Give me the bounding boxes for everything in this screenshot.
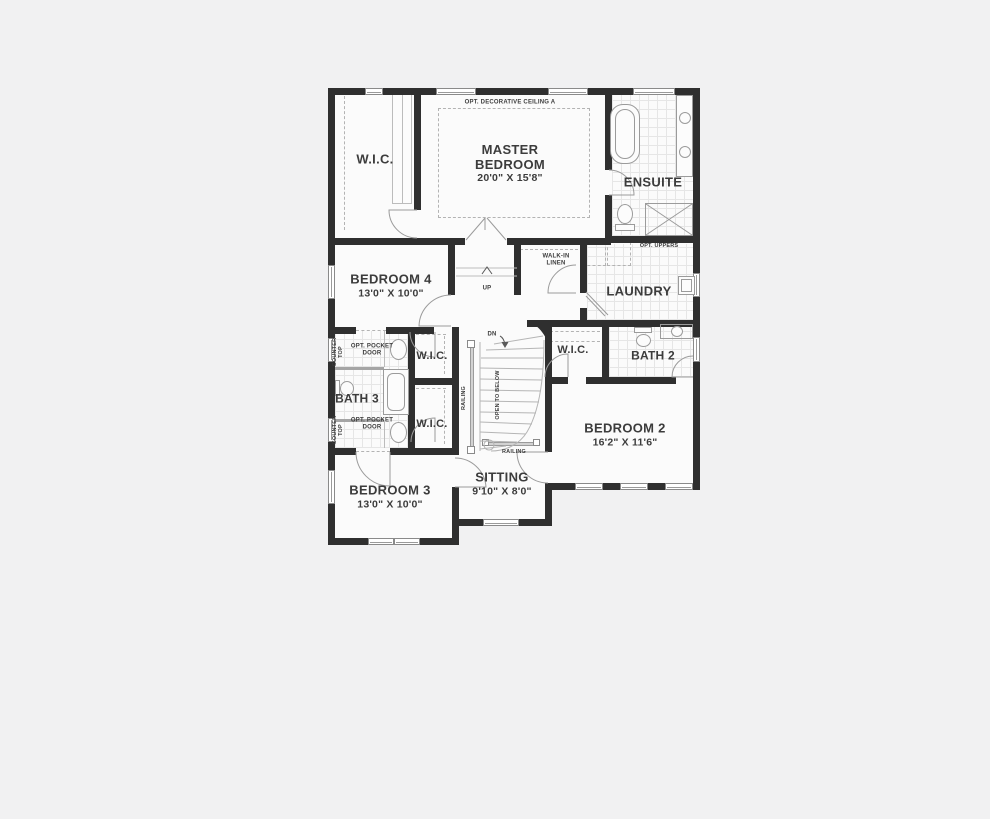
wall	[328, 327, 356, 334]
railing-post	[467, 340, 475, 348]
vanity-counter	[676, 95, 693, 177]
room-dims: 13'0" X 10'0"	[350, 288, 431, 300]
stair-tread	[480, 401, 539, 402]
room-name: BEDROOM 4	[350, 272, 431, 287]
wall	[452, 327, 459, 455]
note-counter-top-lower: COUNTER TOP	[332, 415, 344, 445]
room-name: SITTING	[472, 470, 531, 485]
wall	[514, 238, 521, 295]
room-label-bath3: BATH 3	[335, 392, 379, 405]
stair-tread	[480, 432, 526, 434]
closet-rod	[416, 334, 446, 335]
note-up: UP	[483, 286, 492, 293]
dn-arrow-icon	[500, 336, 505, 345]
stair-tread	[494, 336, 543, 344]
wall	[408, 327, 415, 455]
closet-shelf-line	[550, 331, 600, 332]
wall	[328, 238, 465, 245]
wall	[580, 238, 587, 293]
wall	[602, 320, 609, 384]
stair-tread	[480, 390, 541, 391]
wall	[328, 448, 356, 455]
pocket-door-track	[356, 451, 390, 452]
window	[633, 88, 675, 95]
window	[368, 538, 394, 545]
room-name: BEDROOM 2	[584, 421, 665, 436]
room-label-master-bedroom: MASTER BEDROOM 20'0" X 15'8"	[451, 143, 569, 185]
wall	[580, 308, 587, 320]
curved-staircase	[480, 320, 552, 451]
bathtub-icon	[383, 369, 409, 415]
floor-plan: OPT. DECORATIVE CEILING A W.I.C. MASTER …	[328, 88, 700, 545]
exterior-area	[452, 526, 700, 545]
window	[436, 88, 476, 95]
room-label-wic-master: W.I.C.	[356, 153, 393, 168]
stair-tread	[480, 368, 543, 369]
window	[665, 483, 693, 490]
closet-rod	[416, 388, 446, 389]
laundry-tub-icon	[678, 276, 695, 295]
bathtub-basin	[387, 373, 405, 411]
room-label-bedroom2: BEDROOM 2 16'2" X 11'6"	[584, 421, 665, 448]
wall	[545, 327, 552, 452]
closet-shelf-line	[402, 93, 403, 203]
room-label-walk-in-linen: WALK-IN LINEN	[533, 253, 579, 266]
room-label-bath2: BATH 2	[631, 349, 675, 362]
stair-railing	[486, 442, 536, 446]
room-dims: 13'0" X 10'0"	[349, 499, 430, 511]
note-dn: DN	[487, 332, 496, 339]
closet-shelf	[392, 92, 412, 204]
closet-rod	[344, 96, 345, 230]
room-label-ensuite: ENSUITE	[624, 176, 682, 191]
window	[328, 470, 335, 504]
toilet-icon	[636, 334, 651, 347]
page-background: { "canvas": {"width": 990, "height": 819…	[0, 0, 990, 819]
room-dims: 9'10" X 8'0"	[472, 486, 531, 498]
railing-post	[482, 439, 489, 446]
window	[575, 483, 603, 490]
door-arc-wic-master	[389, 210, 417, 238]
room-label-bedroom3: BEDROOM 3 13'0" X 10'0"	[349, 483, 430, 510]
window	[394, 538, 420, 545]
room-name: MASTER BEDROOM	[451, 143, 569, 172]
window	[620, 483, 648, 490]
wall	[390, 448, 452, 455]
room-label-wic-bedroom4: W.I.C.	[416, 350, 447, 362]
note-railing-bottom: RAILING	[502, 449, 526, 455]
note-railing-side: RAILING	[461, 386, 467, 410]
window	[548, 88, 588, 95]
door-arc-bedroom3	[356, 452, 390, 486]
wall	[552, 377, 568, 384]
vanity-partition	[335, 367, 384, 370]
railing-post	[467, 446, 475, 454]
stair-tread	[486, 348, 544, 350]
closet-rod	[550, 341, 600, 342]
note-counter-top-upper: COUNTER TOP	[332, 337, 344, 367]
up-arrow-icon	[482, 267, 492, 274]
stair-tread	[480, 412, 536, 413]
room-dims: 20'0" X 15'8"	[451, 173, 569, 185]
door-arc-linen	[548, 265, 576, 293]
door-leaf-master-double	[466, 218, 506, 240]
wall	[452, 487, 459, 545]
wall	[414, 88, 421, 210]
room-label-wic-bedroom2: W.I.C.	[557, 344, 588, 356]
window	[365, 88, 383, 95]
wall	[507, 238, 611, 245]
room-label-laundry: LAUNDRY	[606, 285, 671, 300]
window	[483, 519, 519, 526]
note-open-to-below: OPEN TO BELOW	[495, 370, 501, 419]
exterior-area	[552, 490, 700, 526]
sink-icon	[679, 146, 691, 158]
room-name: BEDROOM 3	[349, 483, 430, 498]
bathtub-basin	[615, 109, 635, 159]
wall	[415, 378, 452, 385]
bathtub-icon	[610, 104, 640, 164]
room-label-wic-bedroom3: W.I.C.	[416, 418, 447, 430]
room-label-bedroom4: BEDROOM 4 13'0" X 10'0"	[350, 272, 431, 299]
toilet-tank	[615, 224, 635, 231]
toilet-tank	[634, 327, 652, 333]
dn-arrow-head	[502, 342, 508, 347]
room-label-sitting: SITTING 9'10" X 8'0"	[472, 470, 531, 497]
room-dims: 16'2" X 11'6"	[584, 437, 665, 449]
stair-tread	[480, 422, 532, 424]
window	[328, 265, 335, 299]
sink-icon	[679, 112, 691, 124]
wall	[448, 238, 455, 295]
stair-tread	[480, 379, 542, 380]
wall	[586, 377, 676, 384]
note-opt-uppers: OPT. UPPERS	[640, 243, 679, 249]
shower-icon	[645, 203, 693, 236]
laundry-tub-basin	[681, 279, 692, 292]
note-pocket-door-bottom: OPT. POCKET DOOR	[345, 417, 399, 430]
sink-icon	[671, 326, 683, 337]
note-pocket-door-top: OPT. POCKET DOOR	[345, 343, 399, 356]
note-decorative-ceiling: OPT. DECORATIVE CEILING A	[465, 100, 556, 107]
pocket-door-track	[356, 330, 386, 331]
linen-shelf-line	[520, 249, 578, 250]
opt-uppers-cabinet	[607, 242, 631, 266]
railing-post	[533, 439, 540, 446]
stair-railing	[470, 344, 474, 450]
window	[693, 337, 700, 362]
toilet-icon	[617, 204, 633, 224]
